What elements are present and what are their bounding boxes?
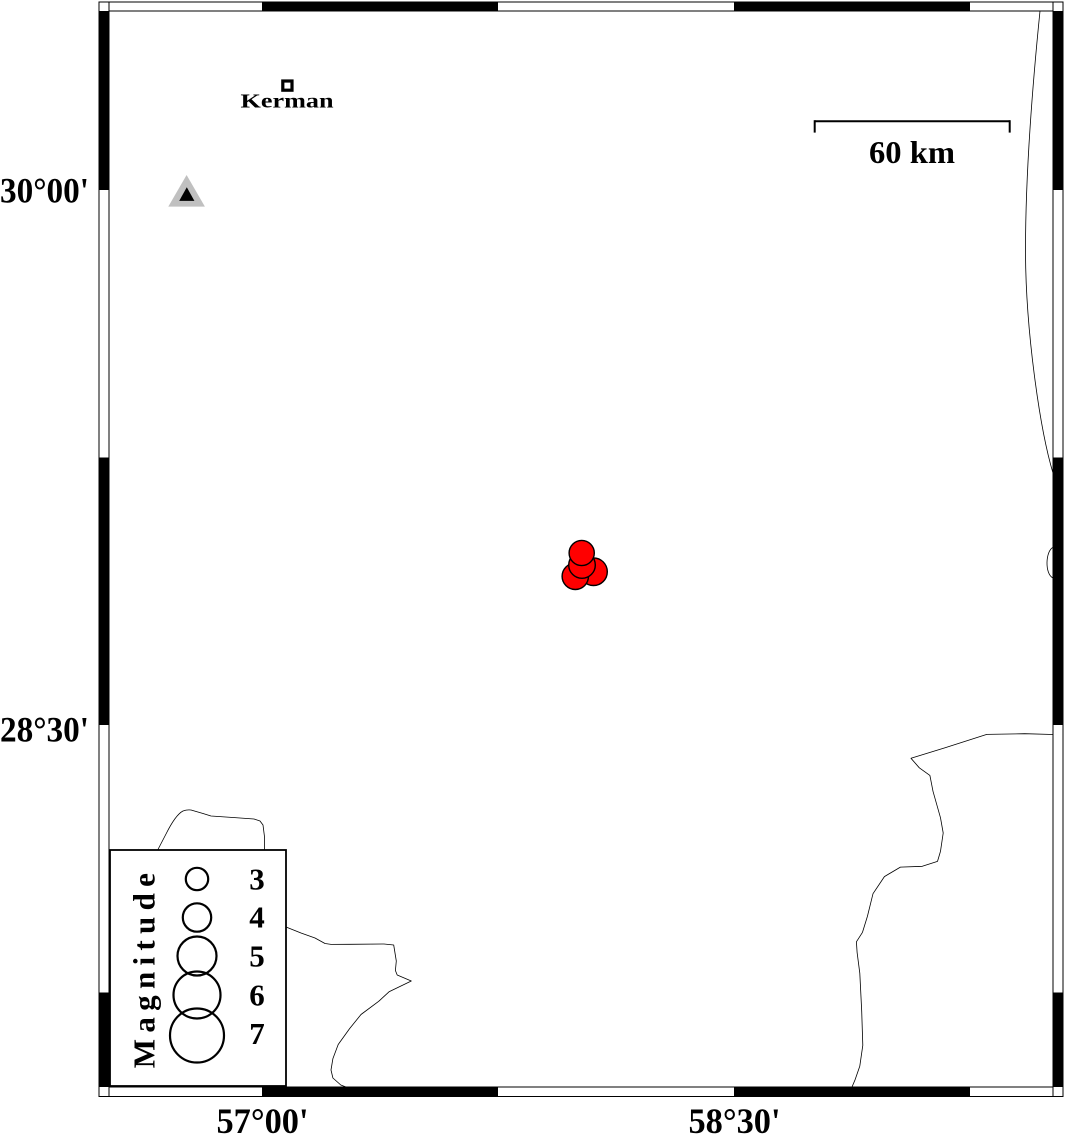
svg-text:5: 5 xyxy=(249,939,265,974)
svg-text:6: 6 xyxy=(249,978,265,1013)
svg-text:3: 3 xyxy=(249,862,265,897)
svg-text:Kerman: Kerman xyxy=(241,90,334,112)
svg-text:7: 7 xyxy=(249,1016,265,1051)
svg-text:57°00': 57°00' xyxy=(217,1101,309,1135)
svg-text:60 km: 60 km xyxy=(869,134,955,170)
svg-text:28°30': 28°30' xyxy=(0,710,89,750)
svg-text:30°00': 30°00' xyxy=(0,171,89,211)
svg-text:58°30': 58°30' xyxy=(689,1101,781,1135)
svg-text:4: 4 xyxy=(249,900,265,935)
svg-text:Magnitude: Magnitude xyxy=(127,867,162,1068)
